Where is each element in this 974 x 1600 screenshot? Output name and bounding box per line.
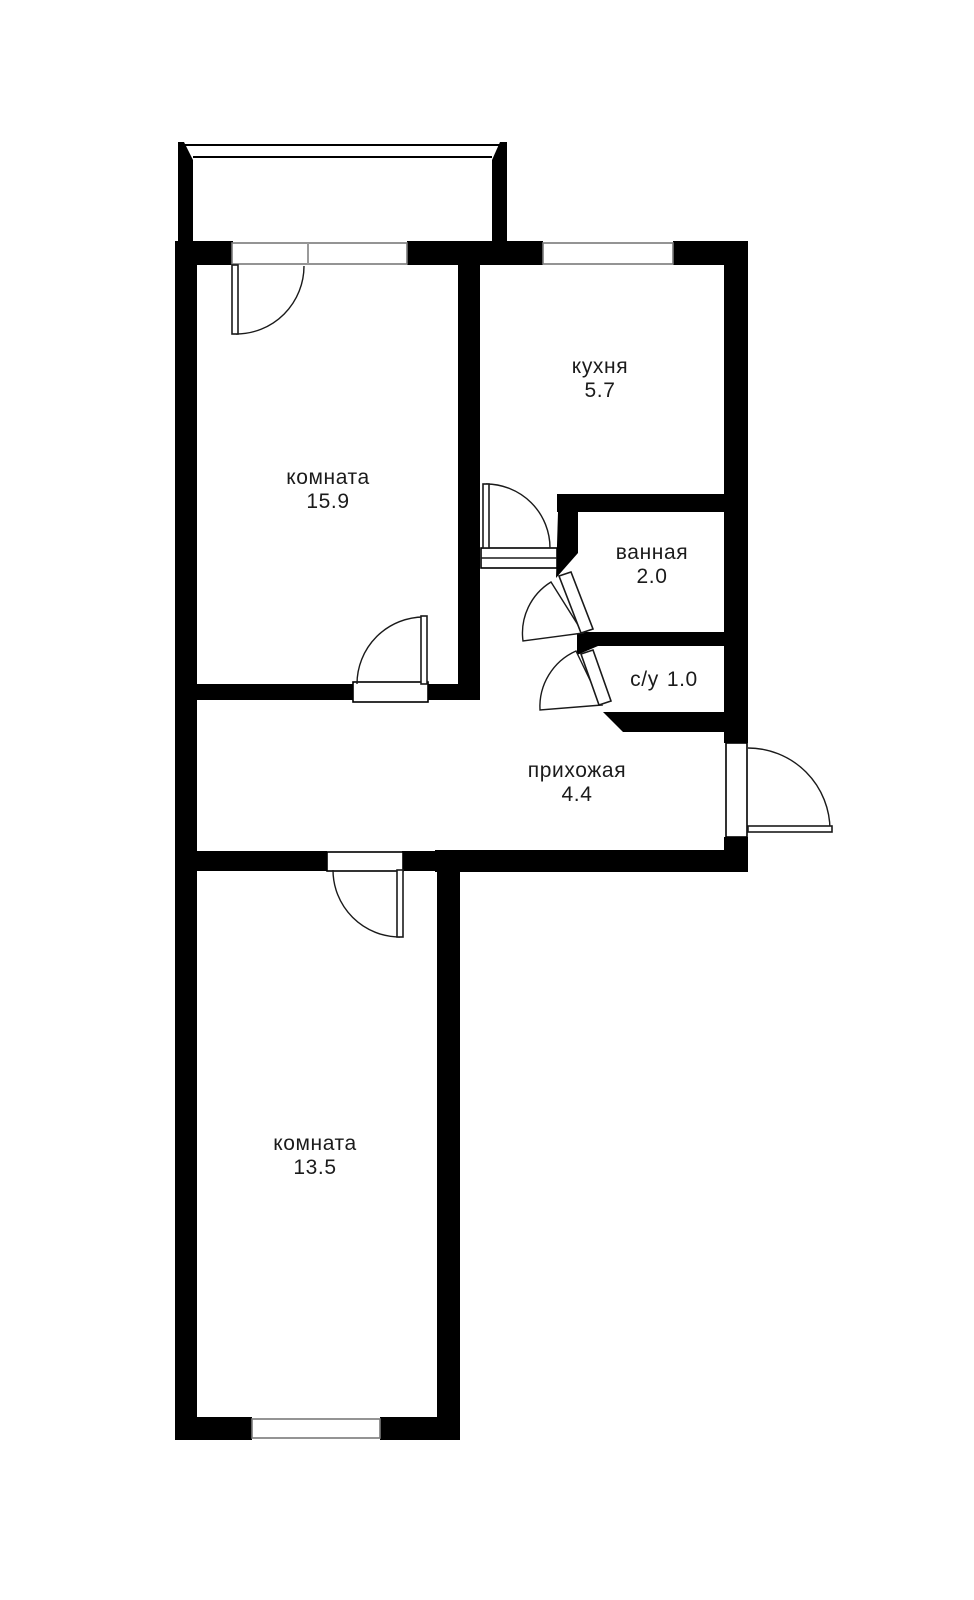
room2-top-wall-left	[175, 851, 327, 871]
balcony-left-wall	[178, 142, 193, 242]
room2-right-wall	[437, 851, 460, 1440]
room1-area: 15.9	[306, 490, 349, 513]
kitchen-window	[543, 243, 673, 264]
room2-bottom-wall-left	[175, 1417, 252, 1440]
room2-door	[397, 870, 403, 937]
right-exterior-wall	[724, 241, 748, 743]
room2-bottom-wall-right	[380, 1417, 460, 1440]
room1-door-swing	[357, 617, 424, 684]
hall-top-wall-left	[197, 684, 353, 700]
bathroom-wc-divider-wall	[595, 632, 748, 646]
balcony	[178, 142, 507, 242]
floorplan-canvas: комната 15.9 кухня 5.7 ванная 2.0 с/у1.0…	[0, 0, 974, 1600]
kitchen-area: 5.7	[585, 379, 616, 402]
hall-top-wall-right	[428, 684, 480, 700]
kitchen-label: кухня	[572, 355, 628, 378]
left-exterior-wall	[175, 241, 197, 1440]
room-labels: комната 15.9 кухня 5.7 ванная 2.0 с/у1.0…	[273, 355, 698, 1179]
room2-area: 13.5	[293, 1156, 336, 1179]
room2-door-swing	[333, 870, 400, 937]
bathroom-top-wall	[557, 494, 748, 512]
room1-label: комната	[286, 466, 370, 489]
wc-area: 1.0	[667, 668, 698, 691]
bathroom-label: ванная	[616, 541, 688, 564]
room2-window	[252, 1419, 380, 1438]
balcony-door	[232, 265, 238, 334]
wc-label: с/у1.0	[630, 668, 698, 691]
wc-bottom-wall	[603, 712, 748, 732]
kitchen-door	[483, 484, 489, 548]
entry-door-swing	[748, 748, 830, 830]
hallway-area: 4.4	[562, 783, 593, 806]
hallway-label: прихожая	[528, 759, 626, 782]
hall-bottom-wall	[435, 850, 748, 872]
entry-door	[748, 826, 832, 832]
bathroom-west-jamb	[556, 512, 578, 578]
central-wall	[458, 241, 480, 700]
room1-balcony-window	[232, 243, 407, 264]
room1-door	[421, 616, 427, 684]
room1-door-opening	[353, 682, 428, 702]
kitchen-door-swing	[486, 484, 550, 548]
balcony-door-swing	[236, 266, 304, 334]
entry-door-opening	[726, 743, 747, 837]
walls	[175, 241, 748, 1440]
room2-label: комната	[273, 1132, 357, 1155]
wc-name: с/у	[630, 668, 659, 691]
bathroom-area: 2.0	[637, 565, 668, 588]
balcony-right-wall	[492, 142, 507, 242]
room2-door-opening	[327, 852, 403, 871]
